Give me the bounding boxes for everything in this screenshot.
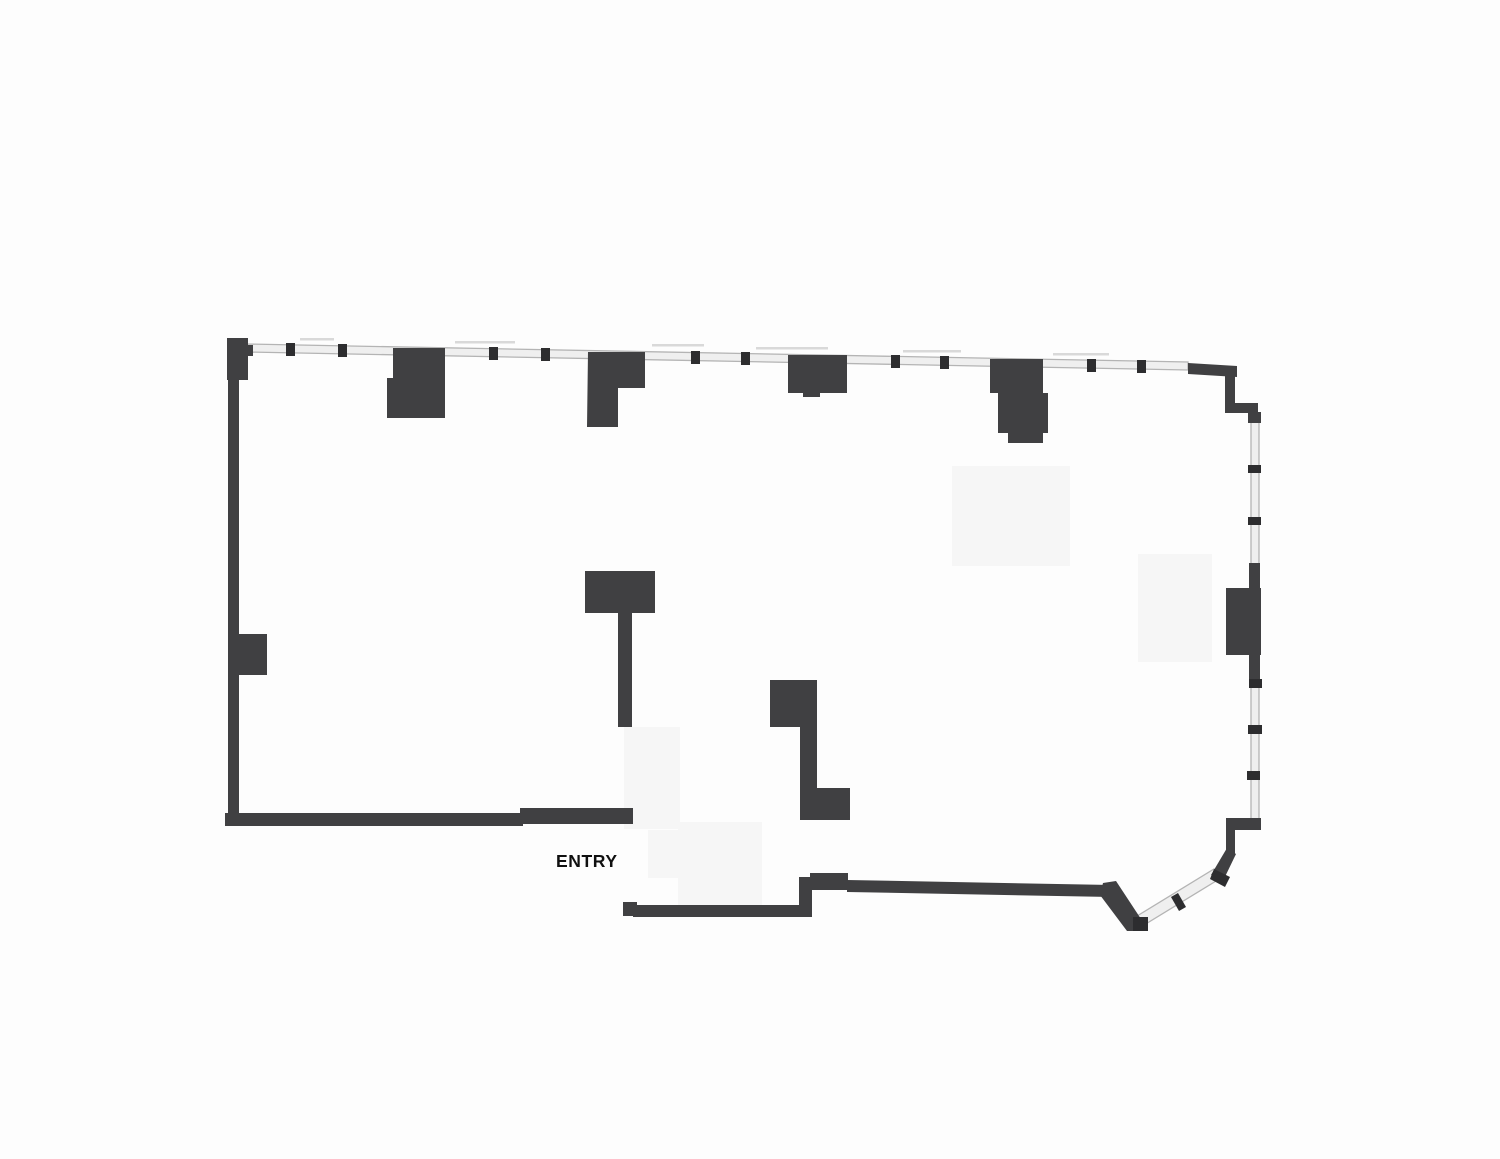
top-mullion-1	[286, 343, 295, 356]
entry-label: ENTRY	[556, 851, 636, 872]
column-b	[587, 352, 645, 427]
bottom-left-wall-end	[520, 808, 633, 824]
top-mullion-7	[891, 355, 900, 368]
bottom-mid-wall	[633, 905, 807, 917]
right-mullion-1	[1248, 465, 1261, 473]
window-annotation	[903, 350, 961, 353]
floor-plan-canvas	[0, 0, 1500, 1159]
window-annotation	[756, 347, 828, 350]
column-d	[990, 359, 1048, 443]
top-mullion-4	[541, 348, 550, 361]
shading-patch	[952, 466, 1070, 566]
right-mullion-5	[1247, 771, 1260, 780]
top-mullion-10	[1137, 360, 1146, 373]
window-annotation	[652, 344, 704, 347]
top-mullion-8	[940, 356, 949, 369]
bottom-right-wall	[847, 880, 1112, 897]
right-upper-step	[1225, 403, 1258, 413]
window-annotation	[455, 341, 515, 344]
top-window	[246, 344, 1188, 370]
right-mullion-3	[1249, 679, 1262, 688]
right-mullion-2	[1248, 517, 1261, 525]
top-mullion-6	[741, 352, 750, 365]
top-mullion-9	[1087, 359, 1096, 372]
left-corner-pier	[227, 338, 248, 380]
window-annotation	[300, 338, 334, 341]
floor-plan: ENTRY	[0, 0, 1500, 1159]
window-annotation	[1053, 353, 1109, 356]
bottom-left-wall	[225, 813, 523, 826]
j-wall	[770, 680, 850, 820]
right-column	[1226, 588, 1261, 655]
left-wall	[228, 338, 239, 826]
right-wall-a	[1249, 563, 1260, 591]
shading-patch	[1138, 554, 1212, 662]
shading-patch	[648, 830, 694, 878]
top-mullion-5	[691, 351, 700, 364]
right-wall-b	[1249, 655, 1260, 682]
right-lower-step	[1226, 818, 1261, 830]
angled-window-end	[1133, 917, 1148, 931]
top-mullion-3	[489, 347, 498, 360]
top-mullion-2	[338, 344, 347, 357]
right-window-head	[1248, 412, 1261, 423]
bottom-mid-pier	[810, 873, 848, 890]
column-c	[788, 355, 847, 397]
right-mullion-4	[1248, 725, 1262, 734]
t-wall	[585, 571, 655, 727]
left-wall-column	[239, 634, 267, 675]
left-corner-tab	[243, 345, 253, 356]
column-a	[387, 348, 445, 418]
